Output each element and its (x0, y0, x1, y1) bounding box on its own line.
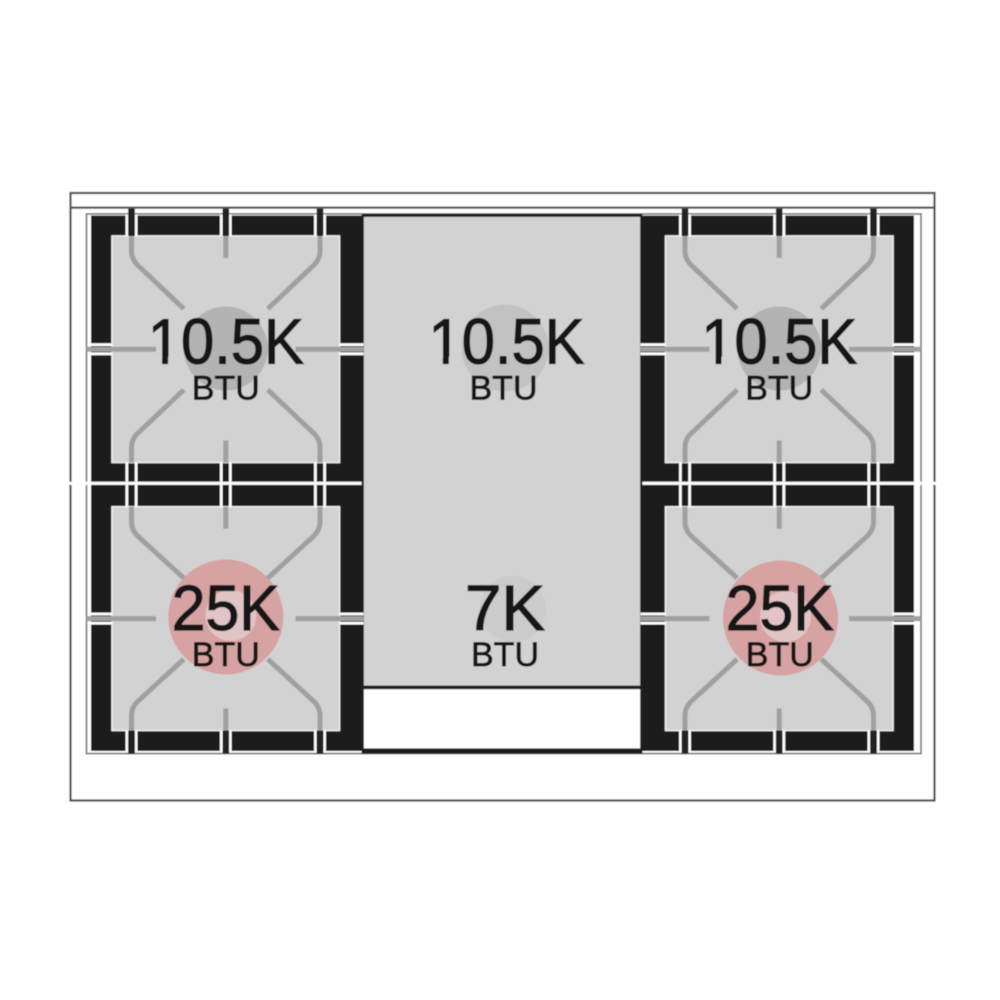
svg-text:10.5K: 10.5K (429, 306, 585, 378)
svg-text:BTU: BTU (192, 636, 260, 674)
svg-text:BTU: BTU (746, 636, 814, 674)
svg-text:10.5K: 10.5K (701, 306, 857, 378)
svg-text:BTU: BTU (470, 370, 538, 408)
svg-text:BTU: BTU (471, 636, 539, 674)
svg-text:25K: 25K (172, 572, 280, 644)
svg-text:BTU: BTU (745, 370, 813, 408)
svg-text:10.5K: 10.5K (148, 306, 304, 378)
svg-text:25K: 25K (726, 572, 834, 644)
svg-text:BTU: BTU (192, 370, 260, 408)
svg-text:7K: 7K (465, 572, 545, 644)
